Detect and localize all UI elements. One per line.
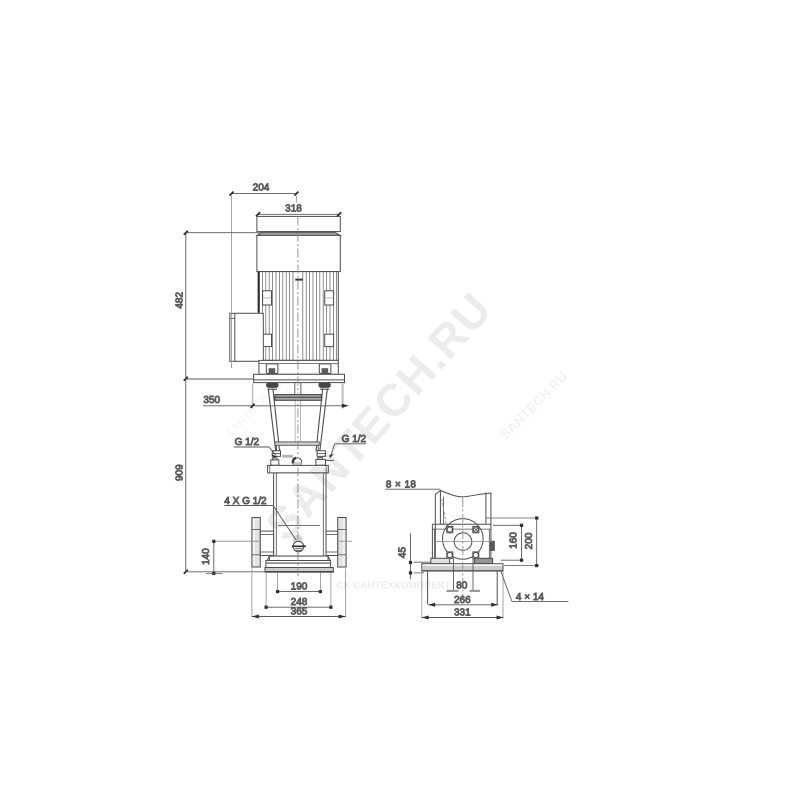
- svg-text:СК САНТЕХКОМПЛЕКТ: СК САНТЕХКОМПЛЕКТ: [337, 581, 451, 592]
- svg-text:266: 266: [454, 595, 471, 606]
- svg-text:8 × 18: 8 × 18: [386, 479, 417, 490]
- svg-text:909: 909: [174, 464, 185, 481]
- svg-text:318: 318: [285, 203, 302, 214]
- svg-text:331: 331: [454, 608, 471, 619]
- svg-text:365: 365: [291, 606, 308, 617]
- svg-text:350: 350: [203, 395, 220, 406]
- svg-text:140: 140: [201, 548, 212, 565]
- svg-text:200: 200: [524, 532, 535, 549]
- svg-text:190: 190: [291, 581, 308, 592]
- svg-text:204: 204: [253, 183, 270, 194]
- svg-text:45: 45: [398, 547, 409, 559]
- svg-text:160: 160: [509, 532, 520, 549]
- svg-text:482: 482: [174, 292, 185, 309]
- svg-text:80: 80: [456, 581, 468, 592]
